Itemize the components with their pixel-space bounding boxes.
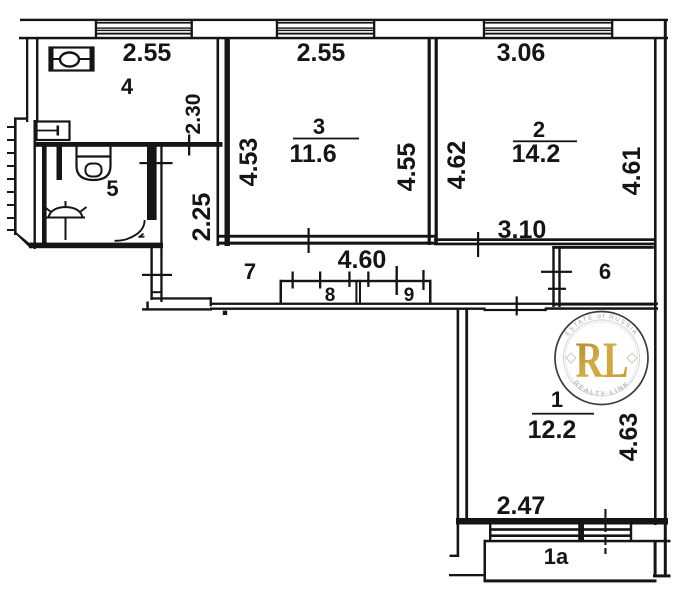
svg-text:8: 8 xyxy=(325,285,336,306)
svg-text:1a: 1a xyxy=(544,544,569,569)
svg-text:9: 9 xyxy=(404,285,415,306)
svg-text:12.2: 12.2 xyxy=(528,416,577,444)
svg-text:1: 1 xyxy=(551,387,563,412)
svg-text:4.60: 4.60 xyxy=(338,246,387,274)
svg-text:4.63: 4.63 xyxy=(615,413,643,462)
svg-text:4.53: 4.53 xyxy=(235,138,263,187)
svg-text:14.2: 14.2 xyxy=(512,140,561,168)
svg-text:2.55: 2.55 xyxy=(123,39,172,67)
svg-text:4.55: 4.55 xyxy=(393,143,421,192)
svg-text:4.61: 4.61 xyxy=(618,147,646,196)
svg-text:7: 7 xyxy=(244,259,256,284)
svg-text:2.30: 2.30 xyxy=(182,94,205,135)
svg-text:3: 3 xyxy=(313,114,325,139)
svg-text:2.47: 2.47 xyxy=(497,492,546,520)
svg-text:3.06: 3.06 xyxy=(497,39,546,67)
svg-text:2.55: 2.55 xyxy=(297,39,346,67)
svg-text:4: 4 xyxy=(121,74,134,99)
svg-text:3.10: 3.10 xyxy=(498,216,547,244)
svg-text:11.6: 11.6 xyxy=(289,140,336,168)
svg-text:2.25: 2.25 xyxy=(188,193,216,242)
svg-text:5: 5 xyxy=(106,176,118,201)
svg-text:6: 6 xyxy=(599,259,611,284)
svg-text:2: 2 xyxy=(533,117,545,142)
svg-text:RL: RL xyxy=(576,333,629,389)
svg-text:4.62: 4.62 xyxy=(443,141,471,190)
